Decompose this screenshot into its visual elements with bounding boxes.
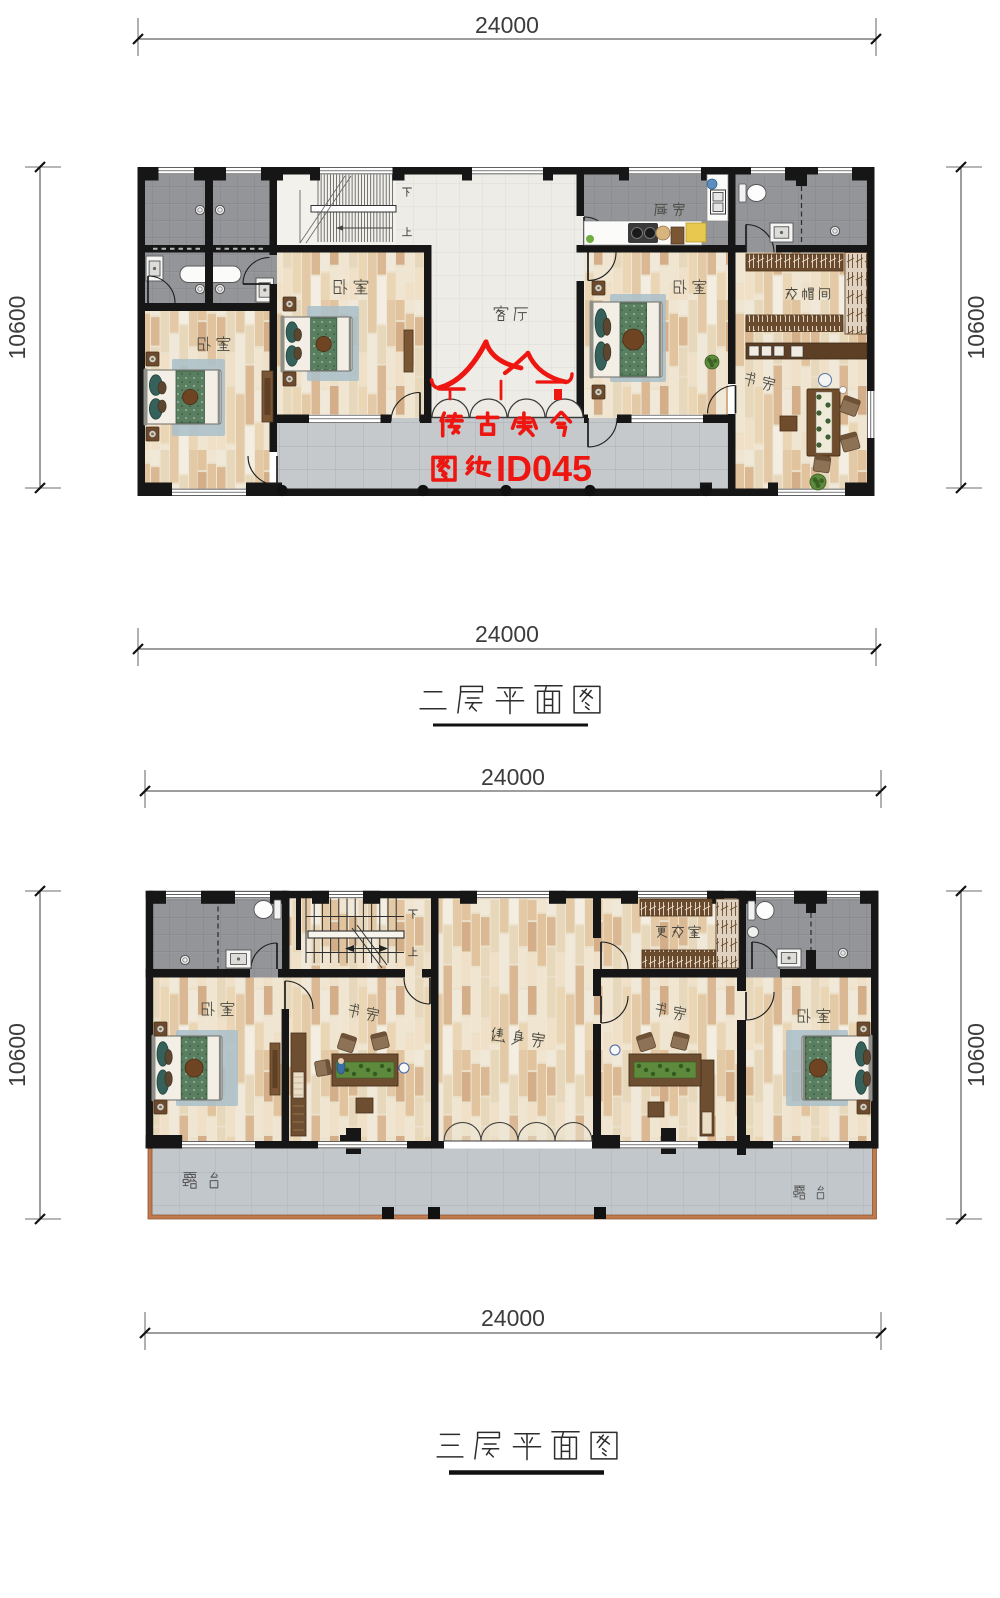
- svg-text:10600: 10600: [963, 1023, 989, 1087]
- svg-text:24000: 24000: [475, 621, 539, 647]
- svg-text:24000: 24000: [481, 1305, 545, 1331]
- svg-text:10600: 10600: [4, 296, 30, 360]
- svg-text:ID045: ID045: [496, 448, 592, 489]
- svg-text:24000: 24000: [481, 764, 545, 790]
- svg-text:24000: 24000: [475, 12, 539, 38]
- svg-text:10600: 10600: [963, 296, 989, 360]
- svg-text:10600: 10600: [4, 1023, 30, 1087]
